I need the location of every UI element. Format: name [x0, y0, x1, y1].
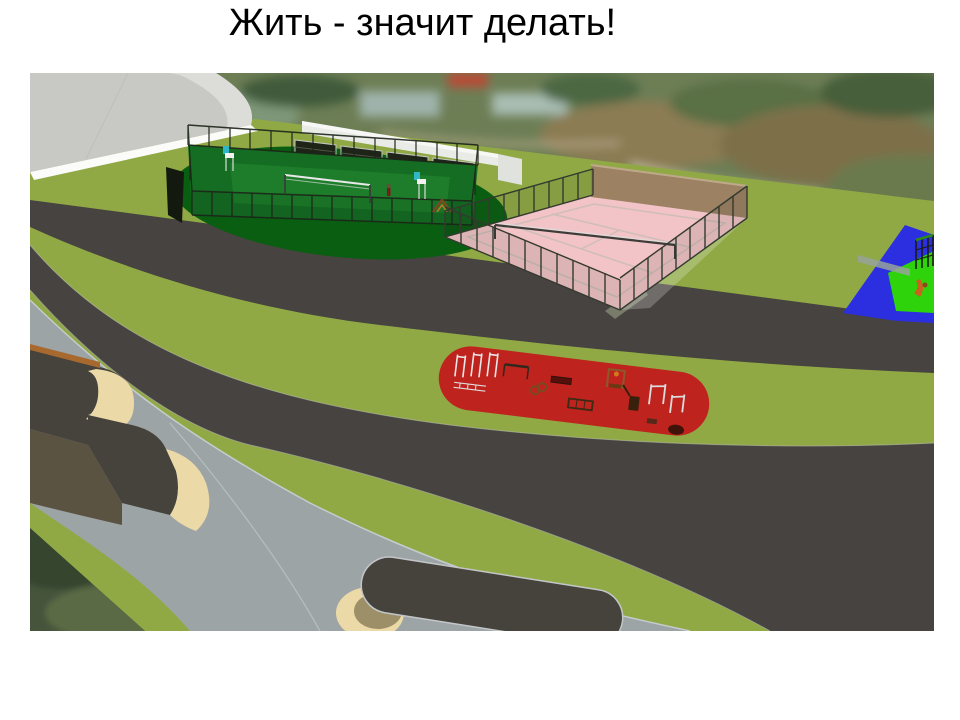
court-gate-screen: [166, 167, 184, 223]
person-figure: [387, 184, 391, 196]
person-figure: [923, 283, 928, 288]
slide-title: Жить - значит делать!: [0, 2, 845, 45]
slide: Жить - значит делать!: [0, 0, 960, 720]
site-render-image: [30, 73, 934, 631]
